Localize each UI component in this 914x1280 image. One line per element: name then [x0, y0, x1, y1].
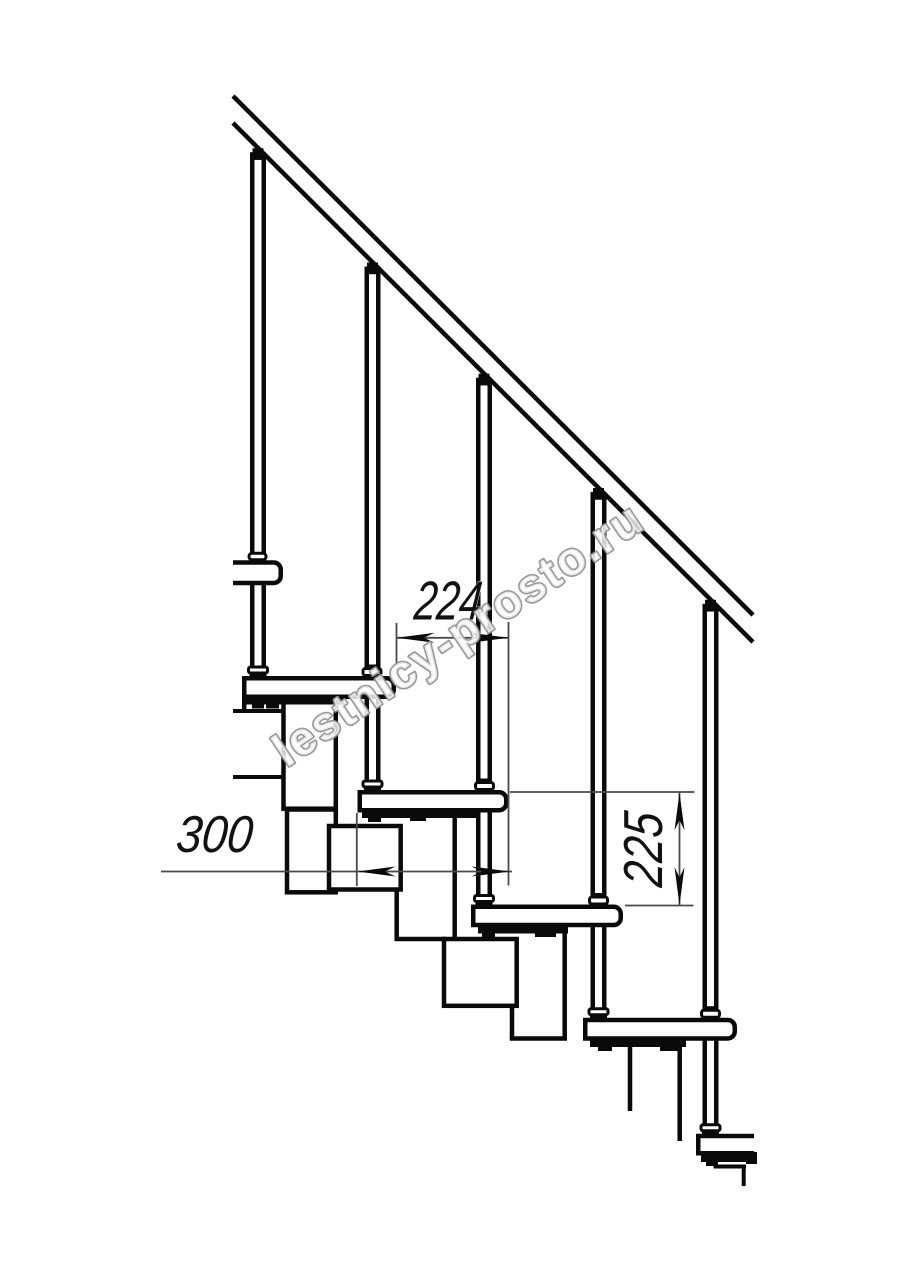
svg-text:300: 300 — [174, 806, 256, 864]
svg-text:225: 225 — [612, 808, 674, 890]
